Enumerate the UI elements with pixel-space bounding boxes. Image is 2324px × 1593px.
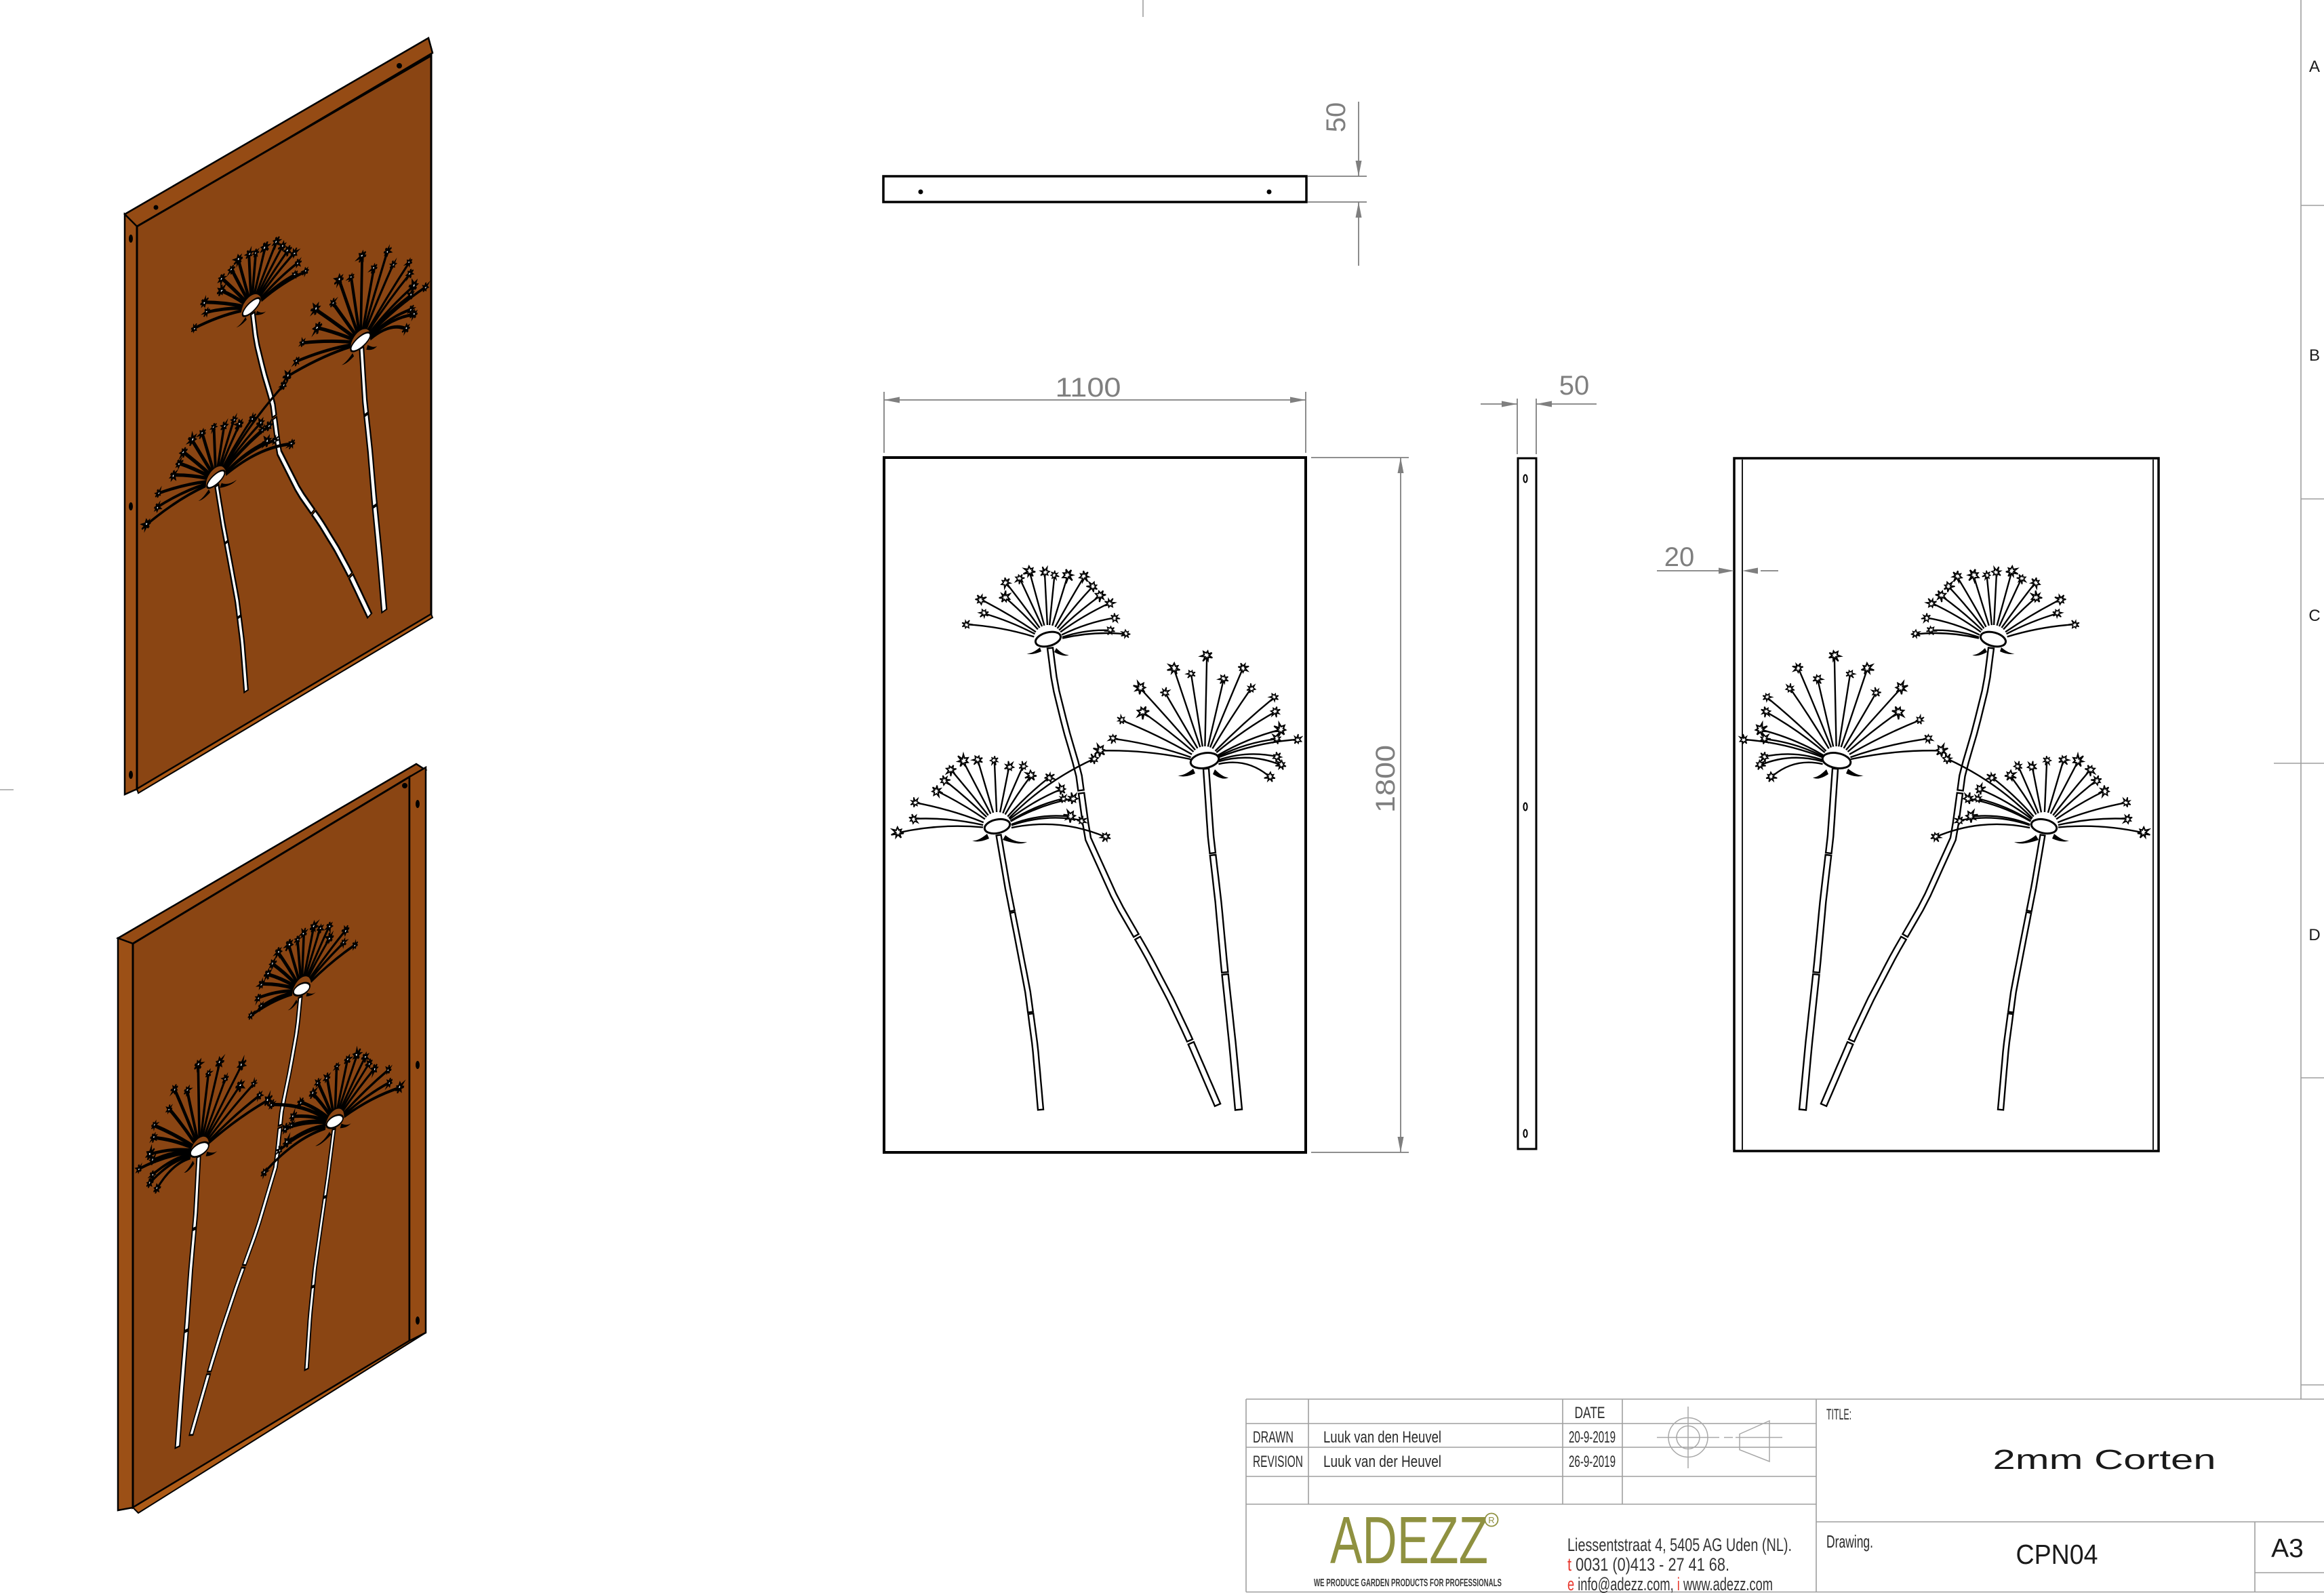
svg-text:C: C bbox=[2308, 607, 2320, 625]
svg-text:DATE: DATE bbox=[1575, 1404, 1605, 1422]
svg-text:ADEZZ: ADEZZ bbox=[1330, 1503, 1488, 1577]
svg-text:50: 50 bbox=[1559, 371, 1590, 401]
svg-text:Luuk van den Heuvel: Luuk van den Heuvel bbox=[1323, 1428, 1441, 1447]
svg-text:A: A bbox=[2309, 58, 2320, 76]
svg-text:B: B bbox=[2309, 346, 2320, 365]
svg-text:Drawing.: Drawing. bbox=[1826, 1531, 1873, 1552]
svg-text:26-9-2019: 26-9-2019 bbox=[1569, 1453, 1616, 1471]
svg-text:WE PRODUCE GARDEN PRODUCTS FOR: WE PRODUCE GARDEN PRODUCTS FOR PROFESSIO… bbox=[1314, 1577, 1502, 1589]
svg-text:t 0031 (0)413 - 27 41 68.: t 0031 (0)413 - 27 41 68. bbox=[1567, 1554, 1729, 1575]
svg-text:1800: 1800 bbox=[1371, 745, 1401, 813]
svg-text:CPN04: CPN04 bbox=[2016, 1539, 2098, 1570]
svg-text:TITLE:: TITLE: bbox=[1826, 1406, 1851, 1423]
svg-text:2mm Corten: 2mm Corten bbox=[1993, 1444, 2216, 1475]
svg-text:D: D bbox=[2308, 926, 2320, 944]
svg-text:50: 50 bbox=[1321, 102, 1351, 133]
svg-text:20: 20 bbox=[1664, 542, 1695, 572]
svg-text:DRAWN: DRAWN bbox=[1253, 1428, 1294, 1447]
svg-text:1100: 1100 bbox=[1056, 373, 1121, 403]
svg-text:e info@adezz.com, i www.adezz.: e info@adezz.com, i www.adezz.com bbox=[1567, 1574, 1773, 1593]
svg-text:R: R bbox=[1488, 1515, 1494, 1525]
svg-text:A3: A3 bbox=[2271, 1534, 2304, 1563]
svg-text:Luuk van der Heuvel: Luuk van der Heuvel bbox=[1323, 1453, 1441, 1471]
svg-text:Liessentstraat 4, 5405 AG Uden: Liessentstraat 4, 5405 AG Uden (NL). bbox=[1567, 1535, 1792, 1555]
svg-text:20-9-2019: 20-9-2019 bbox=[1569, 1428, 1616, 1447]
svg-text:REVISION: REVISION bbox=[1253, 1453, 1303, 1471]
